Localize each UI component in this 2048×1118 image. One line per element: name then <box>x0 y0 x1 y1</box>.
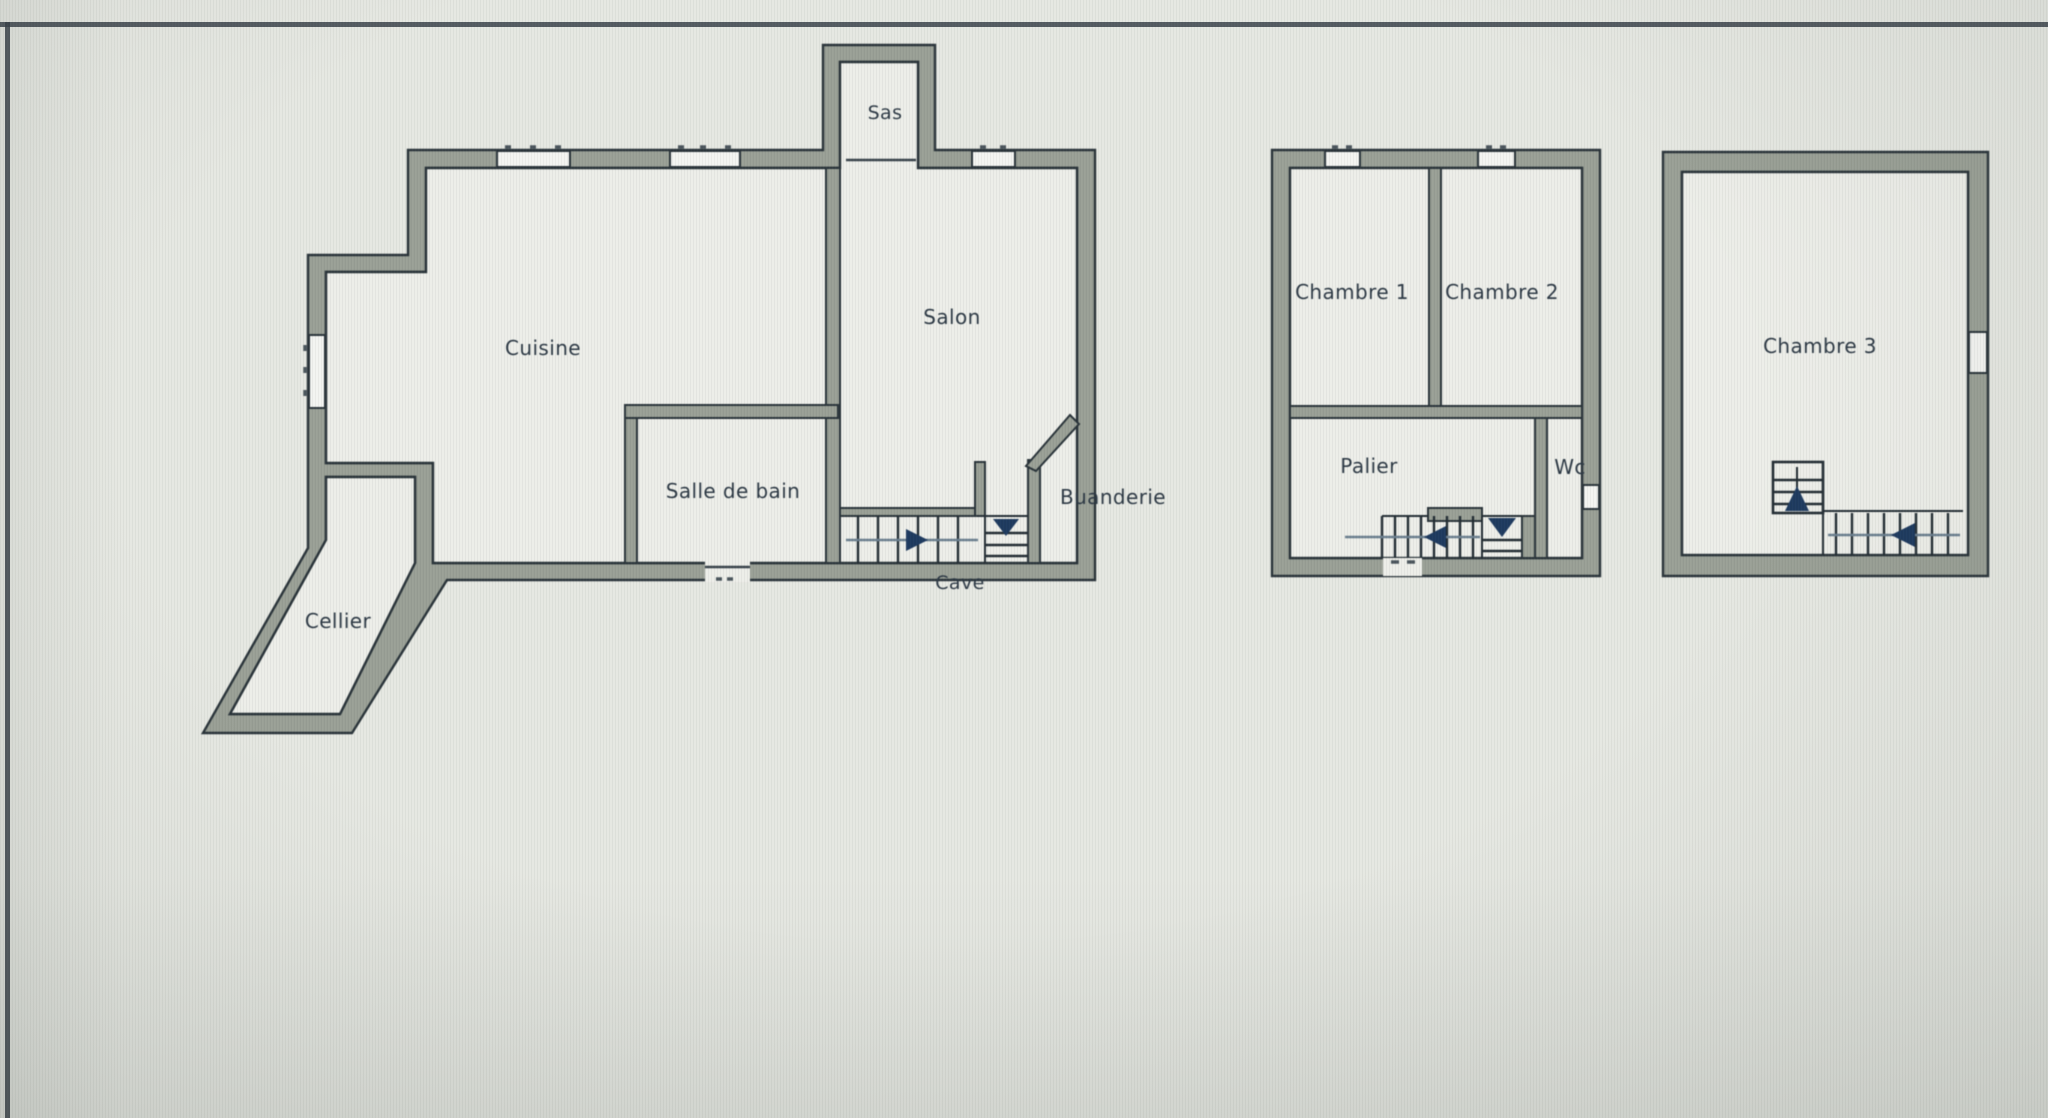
window-cuisine-1 <box>497 151 570 167</box>
wall-chambres-palier <box>1290 406 1582 418</box>
room-label-palier: Palier <box>1340 454 1398 478</box>
first-floor-plan: Chambre 1 Chambre 2 Palier Wc <box>1272 147 1600 576</box>
window-chambre3 <box>1969 332 1987 373</box>
wall-wc-left <box>1535 418 1547 558</box>
window-chambre2 <box>1478 151 1515 167</box>
wall-salle-de-bain-top <box>625 405 838 418</box>
page-border-top <box>0 22 2048 27</box>
window-cuisine-2 <box>670 151 740 167</box>
room-label-cellier: Cellier <box>305 609 372 633</box>
wall-buanderie-left <box>1028 460 1040 563</box>
wall-cuisine-salon <box>826 168 840 563</box>
door-opening-bottom <box>1383 558 1422 576</box>
room-label-cave: Cave <box>935 572 984 594</box>
floor-area <box>1682 172 1968 555</box>
page-border-left <box>5 22 10 1118</box>
room-label-chambre2: Chambre 2 <box>1445 280 1559 304</box>
wall-stair-right-block <box>1522 516 1535 558</box>
wall-chambre1-chambre2 <box>1429 168 1441 406</box>
floor-plan-canvas: Sas Cuisine Salon Salle de bain Buanderi… <box>0 0 2048 1118</box>
wall-stair-corridor-top <box>840 508 977 516</box>
window-cuisine-left <box>309 335 325 408</box>
window-wc <box>1583 485 1599 509</box>
window-chambre1 <box>1325 151 1360 167</box>
room-label-chambre3: Chambre 3 <box>1763 334 1877 358</box>
room-label-buanderie: Buanderie <box>1060 485 1166 509</box>
second-floor-plan: Chambre 3 <box>1663 152 1988 576</box>
window-salon <box>972 151 1015 167</box>
room-label-chambre1: Chambre 1 <box>1295 280 1409 304</box>
room-label-cuisine: Cuisine <box>505 336 581 360</box>
room-label-salle-de-bain: Salle de bain <box>666 479 800 503</box>
wall-stair-stub <box>975 462 985 516</box>
room-label-salon: Salon <box>923 305 980 329</box>
room-label-wc: Wc <box>1554 455 1586 479</box>
ground-floor-plan: Sas Cuisine Salon Salle de bain Buanderi… <box>203 45 1166 733</box>
room-label-sas: Sas <box>868 102 903 124</box>
wall-salle-de-bain-left <box>625 418 637 563</box>
